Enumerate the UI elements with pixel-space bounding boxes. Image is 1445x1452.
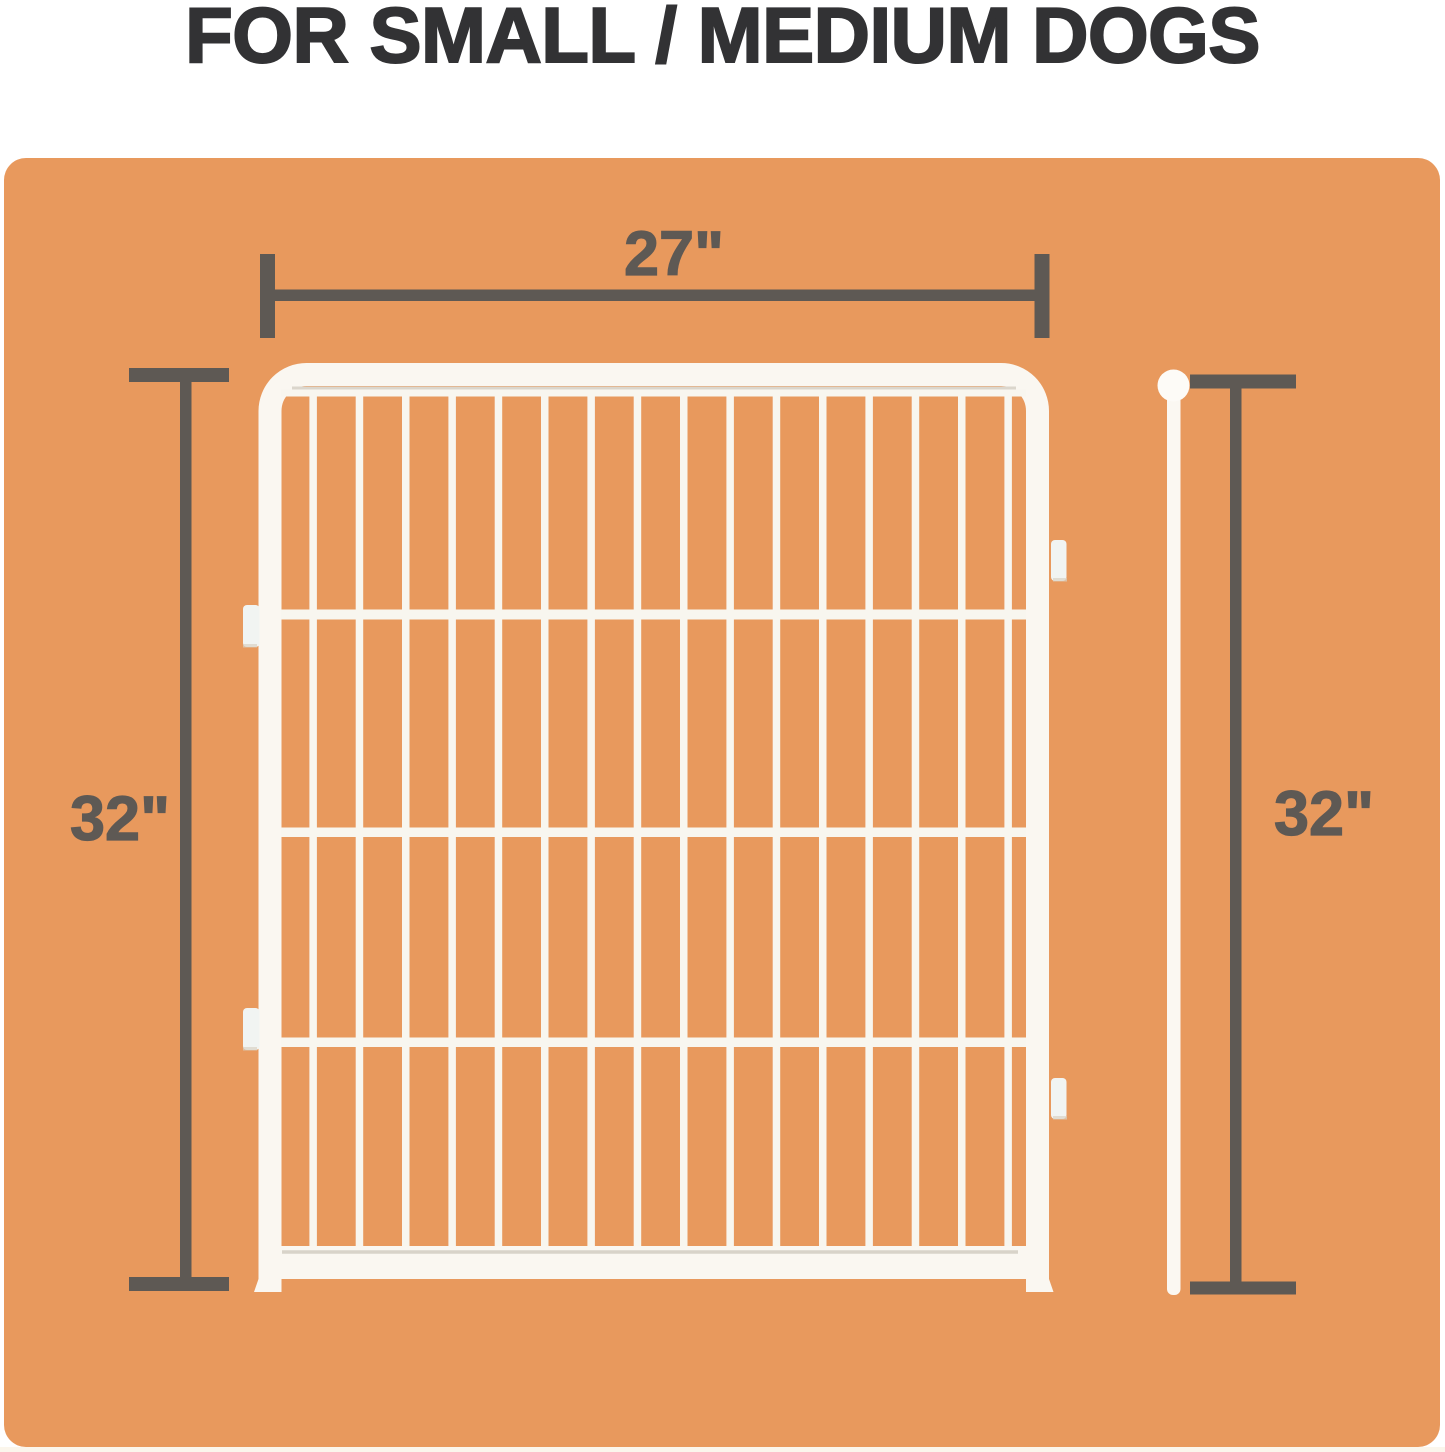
svg-text:27": 27" bbox=[624, 219, 724, 289]
svg-text:32": 32" bbox=[70, 784, 170, 854]
svg-text:32": 32" bbox=[1274, 779, 1374, 849]
